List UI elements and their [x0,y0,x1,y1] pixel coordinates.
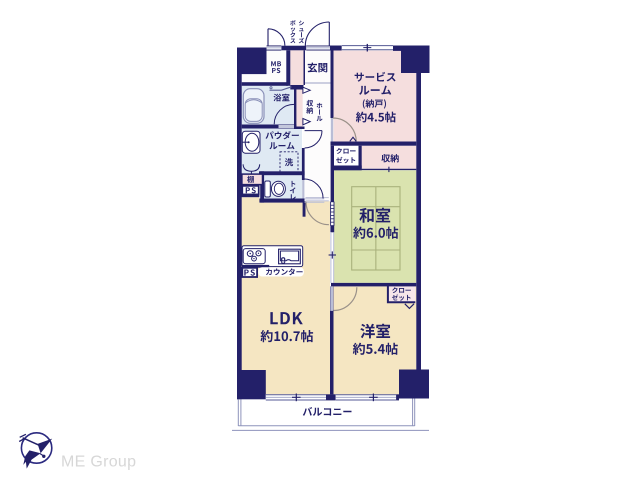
svg-text:ME Group: ME Group [61,454,136,471]
